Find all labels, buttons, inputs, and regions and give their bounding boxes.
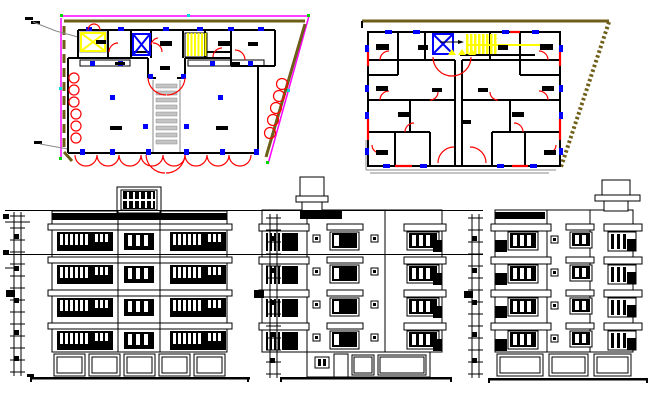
scallop [71, 133, 81, 143]
drawing-canvas [0, 0, 650, 400]
scallop [69, 73, 79, 83]
rooftop-tank-stand [302, 202, 322, 211]
level-markers-left [3, 214, 15, 297]
ground-window [315, 357, 329, 368]
level-extension-lines [5, 222, 30, 268]
floor-row-3 [259, 257, 446, 285]
scallop [69, 85, 79, 95]
rooftop-tank-slab [296, 196, 328, 202]
typical-floor-plan [362, 21, 609, 173]
rooftop-tank-slab [595, 195, 640, 201]
floor-row-2 [259, 290, 446, 318]
scallop-chain-left [69, 73, 81, 143]
floor-row-1 [48, 323, 232, 350]
shop-opening [194, 354, 225, 376]
floor-row-2 [48, 290, 232, 317]
stair-hatch-yellow [187, 33, 207, 56]
front-door-scallops [75, 155, 251, 173]
north-arrow-mark [25, 17, 42, 144]
ground-opening-2-inner [552, 357, 585, 373]
shop-opening [54, 354, 85, 376]
side-elevation [464, 180, 648, 383]
roof-parapet-band [495, 212, 545, 219]
ground-opening-1-inner [500, 357, 540, 373]
door-swing-arcs [372, 51, 556, 163]
rooftop-tank-stand [604, 201, 628, 211]
rooftop-tank [602, 180, 630, 195]
floor-row-3 [48, 257, 232, 284]
boundary-hatched-diagonal [561, 22, 609, 167]
ground-opening-3-inner [597, 357, 628, 373]
scallop [69, 97, 79, 107]
stair-arrow-head [458, 40, 464, 44]
rooftop-tank [300, 177, 324, 196]
floor-row-4 [259, 224, 446, 252]
ground-line [280, 377, 452, 382]
stair-treads [156, 84, 177, 144]
rear-elevation [254, 177, 452, 382]
ground-opening-2-inner [380, 357, 424, 373]
scallop [71, 109, 81, 119]
front-elevation [3, 187, 250, 382]
lift-shaft-cross [433, 34, 453, 54]
level-marker-flag [464, 291, 473, 298]
ground-opening-1-inner [354, 357, 372, 373]
cad-sheet [0, 0, 650, 400]
floor-row-4 [48, 224, 232, 251]
floor-row-1 [259, 323, 446, 351]
ground-opening-2 [378, 355, 426, 375]
ground-line [27, 374, 250, 382]
ground-opening-1 [352, 355, 374, 375]
roof-parapet-band [300, 211, 342, 219]
boundary-mid-ticks [59, 14, 290, 92]
level-marker-flag [254, 290, 264, 298]
roof-parapet-band [52, 213, 227, 220]
scallop [71, 121, 81, 131]
shop-opening [89, 354, 120, 376]
ground-line [488, 378, 648, 383]
shop-opening [124, 354, 155, 376]
shop-opening [159, 354, 190, 376]
ground-door [334, 354, 348, 377]
ground-floor-plan [25, 14, 310, 173]
